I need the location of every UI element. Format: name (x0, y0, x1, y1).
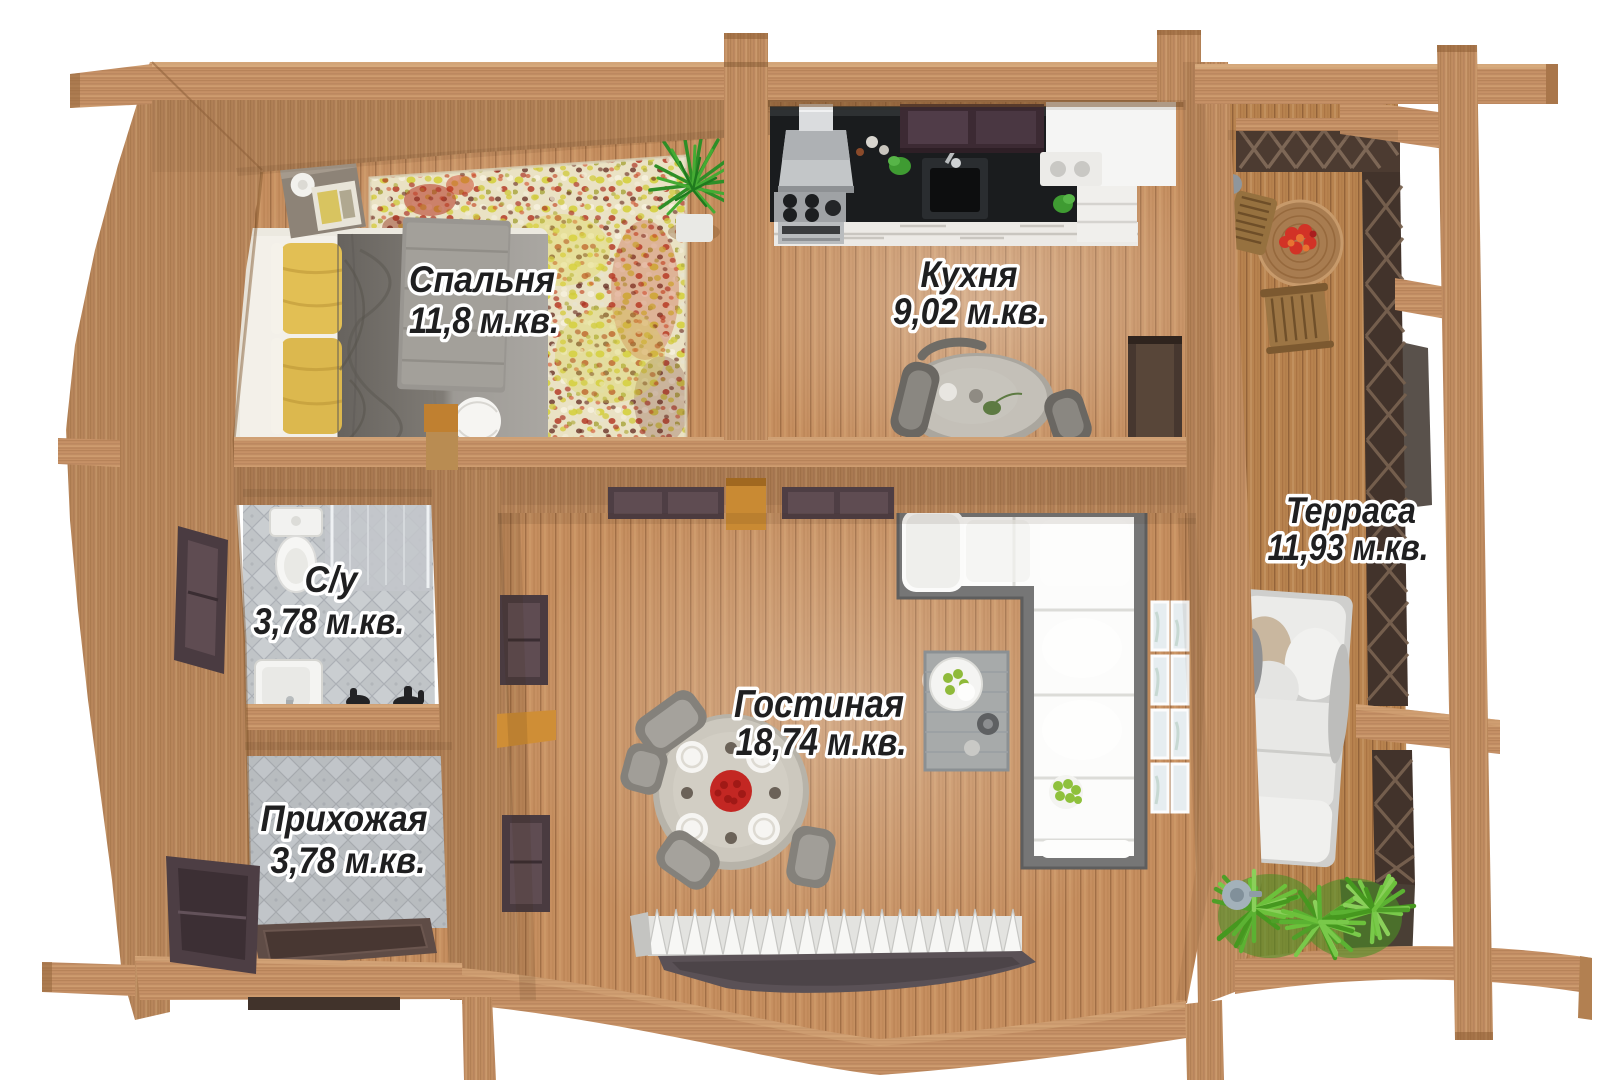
svg-text:11,8 м.кв.: 11,8 м.кв. (409, 300, 559, 341)
svg-text:С/у: С/у (305, 559, 360, 600)
svg-text:9,02 м.кв.: 9,02 м.кв. (893, 291, 1047, 332)
svg-text:Гостиная: Гостиная (734, 683, 904, 726)
svg-text:3,78 м.кв.: 3,78 м.кв. (271, 840, 426, 881)
svg-text:Кухня: Кухня (921, 254, 1018, 295)
svg-text:Терраса: Терраса (1286, 490, 1416, 531)
svg-text:Спальня: Спальня (409, 259, 555, 300)
svg-text:18,74 м.кв.: 18,74 м.кв. (736, 721, 907, 764)
svg-text:Прихожая: Прихожая (261, 798, 428, 839)
svg-text:3,78 м.кв.: 3,78 м.кв. (254, 601, 405, 642)
svg-text:11,93 м.кв.: 11,93 м.кв. (1268, 527, 1429, 568)
